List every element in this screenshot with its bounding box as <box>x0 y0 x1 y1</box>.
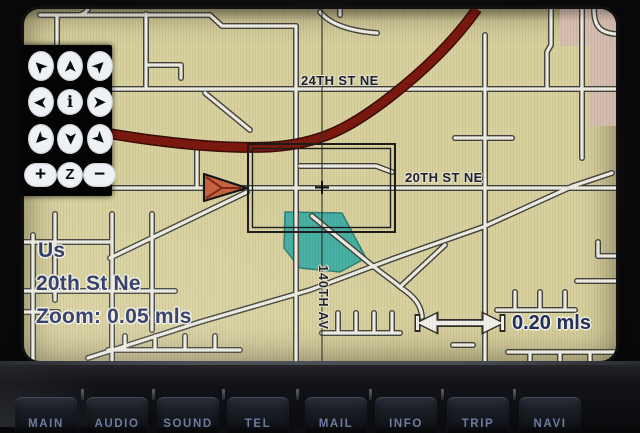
button-divider <box>369 389 372 400</box>
street-label-24th-st-ne: 24TH ST NE <box>301 73 379 88</box>
street-label-20th-st-ne: 20TH ST NE <box>405 170 483 185</box>
audio-button[interactable]: AUDIO <box>86 397 148 433</box>
button-divider <box>441 389 444 400</box>
info-icon: i <box>67 94 73 110</box>
arrow-up-left-icon: ➤ <box>31 56 51 76</box>
nav-unit: { "screen": { "street_labels": { "label_… <box>0 0 640 427</box>
arrow-down-right-icon: ➤ <box>90 129 110 149</box>
arrow-down-left-icon: ➤ <box>31 129 51 149</box>
arrow-up-icon: ➤ <box>62 60 77 73</box>
status-zoom-level: Zoom: 0.05 mls <box>36 305 192 329</box>
scroll-down-left-button[interactable]: ➤ <box>28 124 54 154</box>
scroll-left-button[interactable]: ➤ <box>28 87 54 117</box>
trip-button[interactable]: TRIP <box>447 397 509 433</box>
info-button[interactable]: i <box>57 89 83 115</box>
zoom-in-button[interactable]: + <box>24 163 57 187</box>
button-divider <box>296 389 299 400</box>
arrow-left-icon: ➤ <box>34 95 47 110</box>
map-display: 24TH ST NE 20TH ST NE 140TH AV Us 20th S… <box>24 9 616 361</box>
status-current-street: 20th St Ne <box>36 272 141 296</box>
main-button[interactable]: MAIN <box>15 397 77 433</box>
mail-button[interactable]: MAIL <box>305 397 367 433</box>
navi-button[interactable]: NAVI <box>519 397 581 433</box>
zoom-out-button[interactable]: − <box>83 163 116 187</box>
minus-icon: − <box>94 165 105 184</box>
scroll-up-left-button[interactable]: ➤ <box>28 51 54 81</box>
button-divider <box>222 389 225 400</box>
arrow-up-right-icon: ➤ <box>90 56 110 76</box>
scroll-right-button[interactable]: ➤ <box>87 87 113 117</box>
scroll-up-button[interactable]: ➤ <box>57 51 83 81</box>
dashboard-bezel: MAIN AUDIO SOUND TEL MAIL INFO TRIP NAVI <box>0 361 640 427</box>
button-divider <box>152 389 155 400</box>
crosshair-icon <box>315 181 329 194</box>
scale-distance-label: 0.20 mls <box>512 312 591 335</box>
street-label-140th-av: 140TH AV <box>316 265 330 330</box>
district-patch <box>560 9 616 126</box>
button-divider <box>81 389 84 400</box>
arrow-down-icon: ➤ <box>62 132 77 145</box>
scroll-up-right-button[interactable]: ➤ <box>87 51 113 81</box>
button-divider <box>513 389 516 400</box>
plus-icon: + <box>35 165 46 184</box>
status-country: Us <box>38 239 65 263</box>
map-scroll-pad: ➤ ➤ ➤ ➤ i ➤ ➤ ➤ ➤ + Z − <box>22 45 112 196</box>
arrow-right-icon: ➤ <box>93 95 106 110</box>
info-hard-button[interactable]: INFO <box>375 397 437 433</box>
zoom-button[interactable]: Z <box>57 162 83 188</box>
zoom-z-icon: Z <box>65 166 74 183</box>
scroll-down-button[interactable]: ➤ <box>57 124 83 154</box>
scale-bar <box>416 312 504 334</box>
scroll-down-right-button[interactable]: ➤ <box>87 124 113 154</box>
sound-button[interactable]: SOUND <box>157 397 219 433</box>
tel-button[interactable]: TEL <box>227 397 289 433</box>
